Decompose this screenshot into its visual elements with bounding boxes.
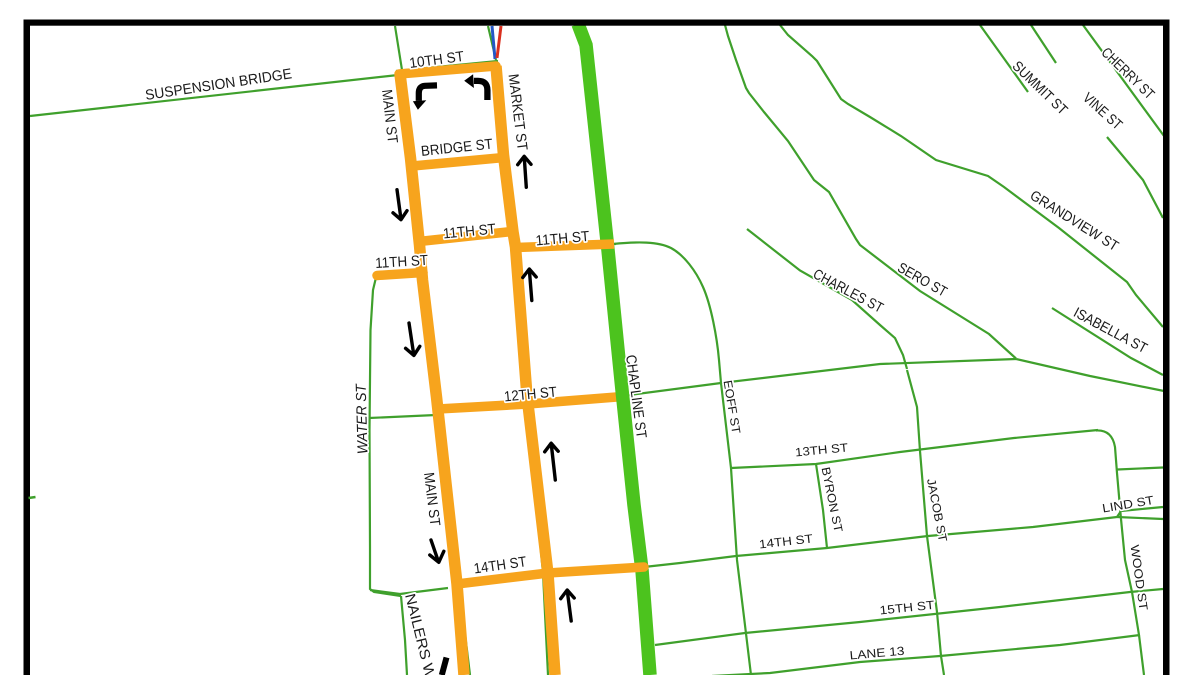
svg-text:11TH ST: 11TH ST <box>375 253 429 272</box>
svg-text:WATER ST: WATER ST <box>354 383 372 454</box>
